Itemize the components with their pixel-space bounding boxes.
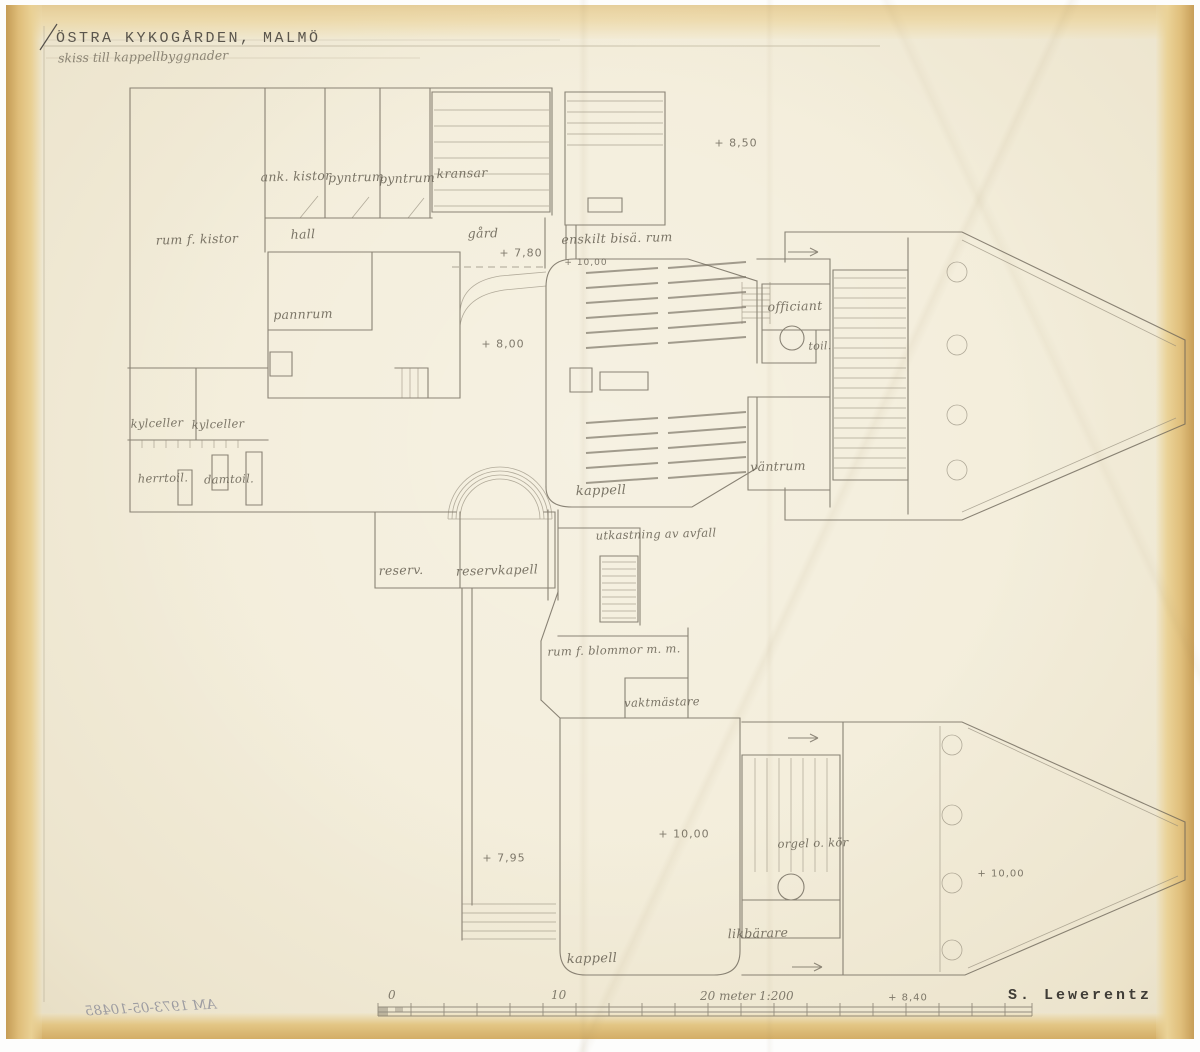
room-label: pyntrum <box>379 170 435 186</box>
room-label: pannrum <box>273 306 333 323</box>
room-label: vaktmästare <box>624 694 700 710</box>
elevation-mark: + 7,80 <box>499 247 542 260</box>
room-label: kylceller <box>130 415 183 430</box>
room-label: väntrum <box>750 458 806 474</box>
room-label: orgel o. kör <box>777 835 848 851</box>
elevation-mark: + 10,00 <box>658 828 709 841</box>
elevation-mark: + 8,50 <box>714 137 757 150</box>
scale-ruler <box>378 1003 1032 1016</box>
room-label: damtoil. <box>204 471 254 486</box>
elevation-mark: + 10,00 <box>564 258 607 268</box>
thin-lines-group <box>300 196 1178 972</box>
elevation-mark: + 10,00 <box>977 869 1024 880</box>
room-label: kappell <box>567 951 618 967</box>
room-label: officiant <box>767 298 822 314</box>
room-label: reserv. <box>378 562 423 578</box>
room-label: enskilt bisä. rum <box>561 229 673 247</box>
drawing-subtitle: skiss till kappellbyggnader <box>58 48 228 66</box>
direction-arrows <box>788 248 822 971</box>
elevation-mark: + 8,40 <box>888 993 928 1004</box>
room-label: pyntrum <box>328 169 384 185</box>
floor-plan-linework <box>0 0 1200 1052</box>
elevation-mark: + 7,95 <box>482 852 525 865</box>
room-label: likbärare <box>728 925 789 942</box>
room-label: ank. kistor <box>260 168 331 185</box>
room-label: kappell <box>576 483 627 499</box>
room-label: hall <box>290 226 315 242</box>
room-label: gård <box>467 225 498 241</box>
room-label: toil. <box>808 339 831 353</box>
room-label: kransar <box>436 165 487 181</box>
room-label: rum f. kistor <box>156 230 239 247</box>
scale-tick-0: 0 <box>388 988 396 1002</box>
elevation-mark: + 8,00 <box>481 338 524 351</box>
scale-tick-20-and-ratio: 20 meter 1:200 <box>700 989 794 1003</box>
drawing-title: ÖSTRA KYKOGÅRDEN, MALMÖ <box>56 30 321 47</box>
architect-signature: S. Lewerentz <box>1008 987 1152 1004</box>
room-label: kylceller <box>191 416 244 431</box>
room-label: herrtoil. <box>138 470 189 485</box>
room-label: reservkapell <box>456 561 539 578</box>
scale-tick-10: 10 <box>551 988 566 1002</box>
scanned-drawing-photo: ÖSTRA KYKOGÅRDEN, MALMÖ skiss till kappe… <box>0 0 1200 1052</box>
